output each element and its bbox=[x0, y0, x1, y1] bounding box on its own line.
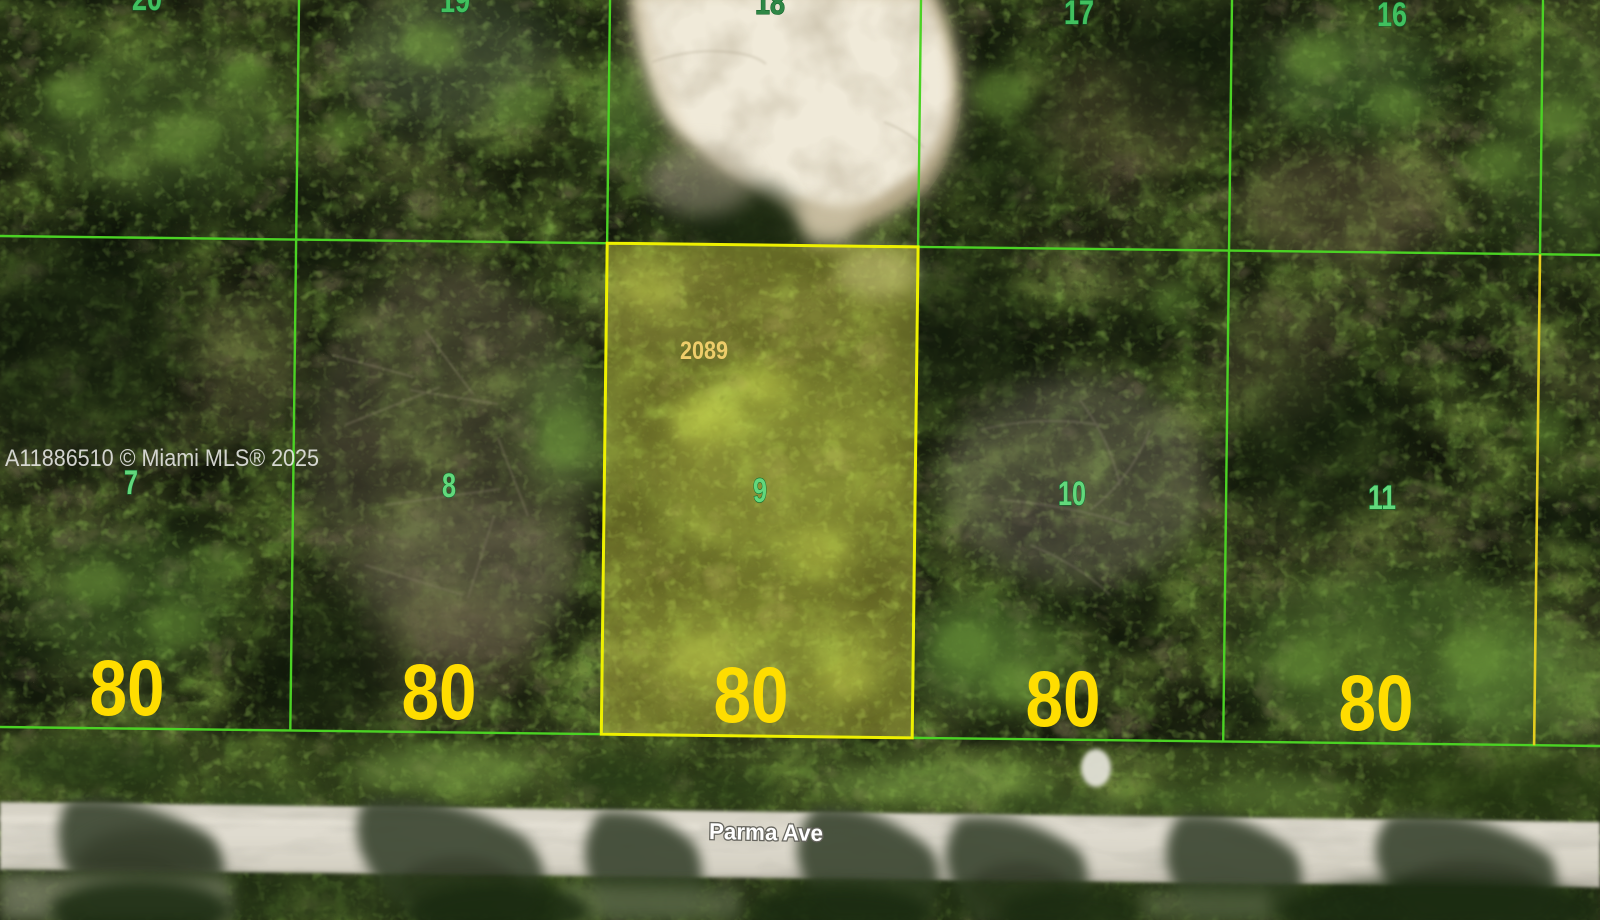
svg-text:80: 80 bbox=[1339, 658, 1414, 747]
svg-text:17: 17 bbox=[1064, 0, 1094, 32]
svg-text:80: 80 bbox=[1026, 654, 1101, 743]
svg-text:18: 18 bbox=[755, 0, 785, 22]
svg-text:16: 16 bbox=[1377, 0, 1407, 34]
svg-text:80: 80 bbox=[90, 643, 165, 732]
svg-text:2089: 2089 bbox=[680, 337, 728, 365]
svg-text:9: 9 bbox=[753, 472, 767, 510]
svg-text:80: 80 bbox=[402, 647, 477, 736]
svg-text:19: 19 bbox=[440, 0, 470, 20]
svg-text:Parma Ave: Parma Ave bbox=[709, 818, 823, 846]
svg-text:8: 8 bbox=[442, 467, 456, 505]
svg-text:80: 80 bbox=[714, 650, 789, 739]
svg-text:20: 20 bbox=[132, 0, 162, 18]
svg-text:11: 11 bbox=[1368, 479, 1396, 517]
svg-text:10: 10 bbox=[1058, 475, 1086, 513]
svg-text:A11886510 © Miami MLS® 2025: A11886510 © Miami MLS® 2025 bbox=[5, 445, 319, 472]
